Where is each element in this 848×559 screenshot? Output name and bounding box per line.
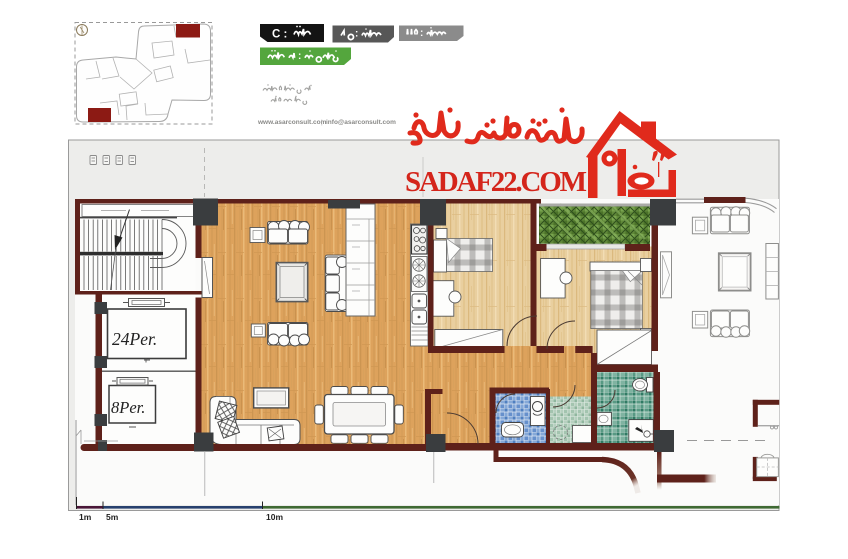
- svg-text:5m: 5m: [106, 512, 119, 522]
- svg-text:C :: C :: [272, 29, 287, 41]
- svg-text::: :: [420, 28, 423, 39]
- svg-text:8Per.: 8Per.: [111, 398, 145, 417]
- svg-text:|: |: [321, 119, 323, 126]
- svg-text:1m: 1m: [79, 512, 92, 522]
- svg-text::: :: [298, 51, 301, 62]
- svg-text:10m: 10m: [266, 512, 283, 522]
- svg-text:24Per.: 24Per.: [112, 329, 157, 349]
- svg-text:www.asarconsult.com: www.asarconsult.com: [257, 119, 327, 126]
- svg-text:SADAF22.COM: SADAF22.COM: [405, 166, 587, 198]
- svg-text:info@asarconsult.com: info@asarconsult.com: [326, 119, 396, 126]
- svg-text::: :: [355, 29, 358, 40]
